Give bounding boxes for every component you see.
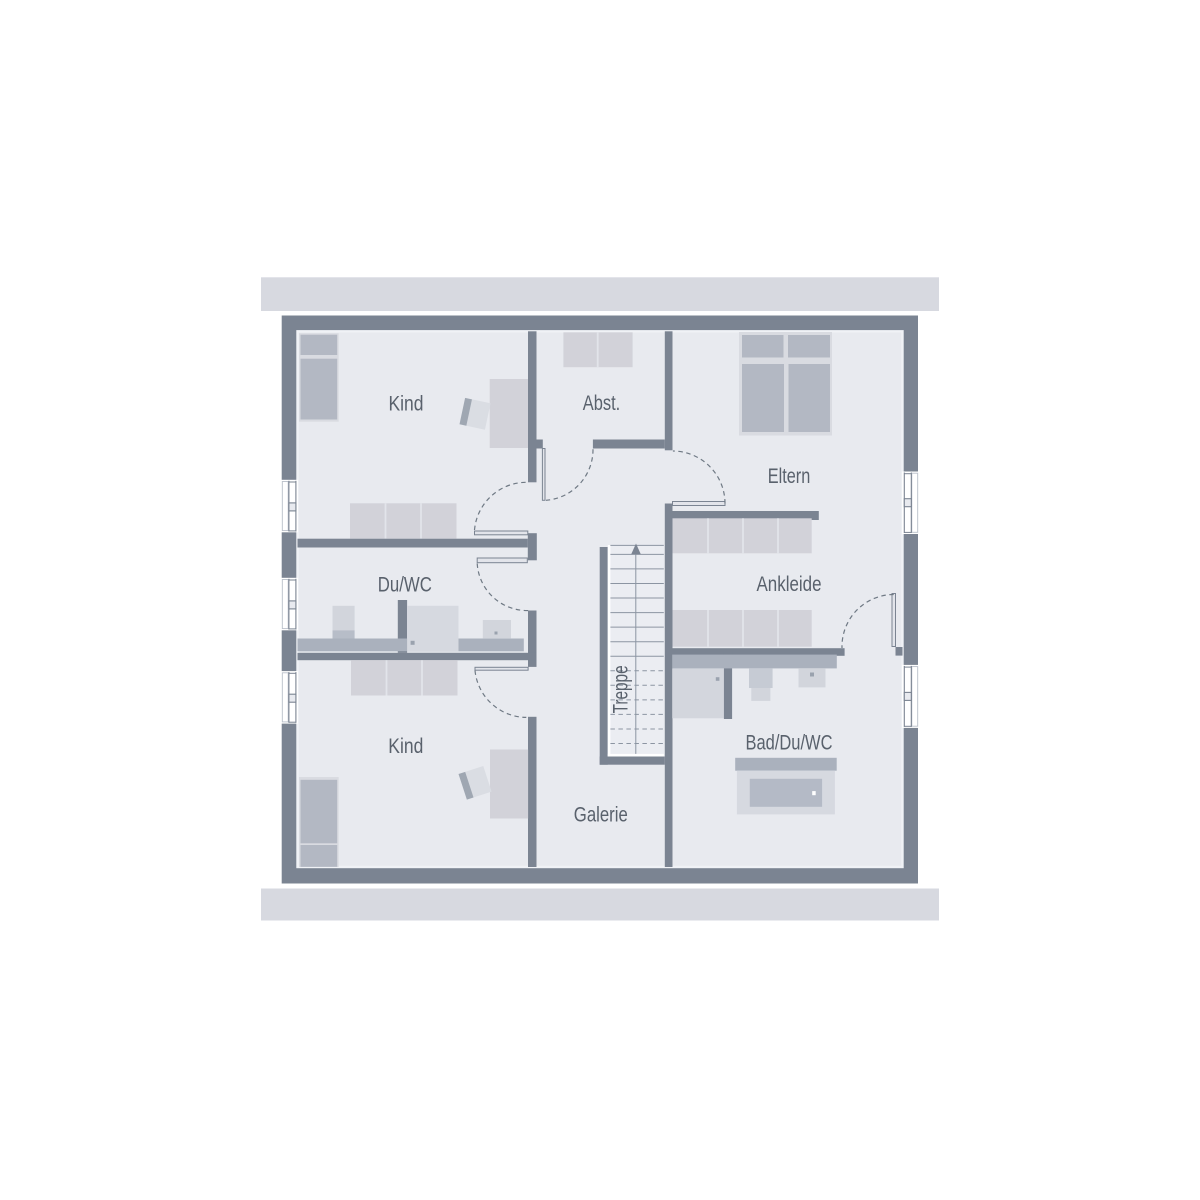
svg-text:Ankleide: Ankleide [757, 572, 822, 596]
svg-text:Du/WC: Du/WC [378, 573, 432, 597]
svg-text:Abst.: Abst. [583, 391, 621, 415]
svg-text:Kind: Kind [389, 392, 424, 416]
svg-text:Kind: Kind [388, 734, 423, 758]
svg-text:Galerie: Galerie [574, 803, 628, 827]
svg-text:Treppe: Treppe [608, 665, 632, 713]
svg-text:Bad/Du/WC: Bad/Du/WC [746, 731, 833, 755]
svg-text:Eltern: Eltern [768, 464, 811, 488]
